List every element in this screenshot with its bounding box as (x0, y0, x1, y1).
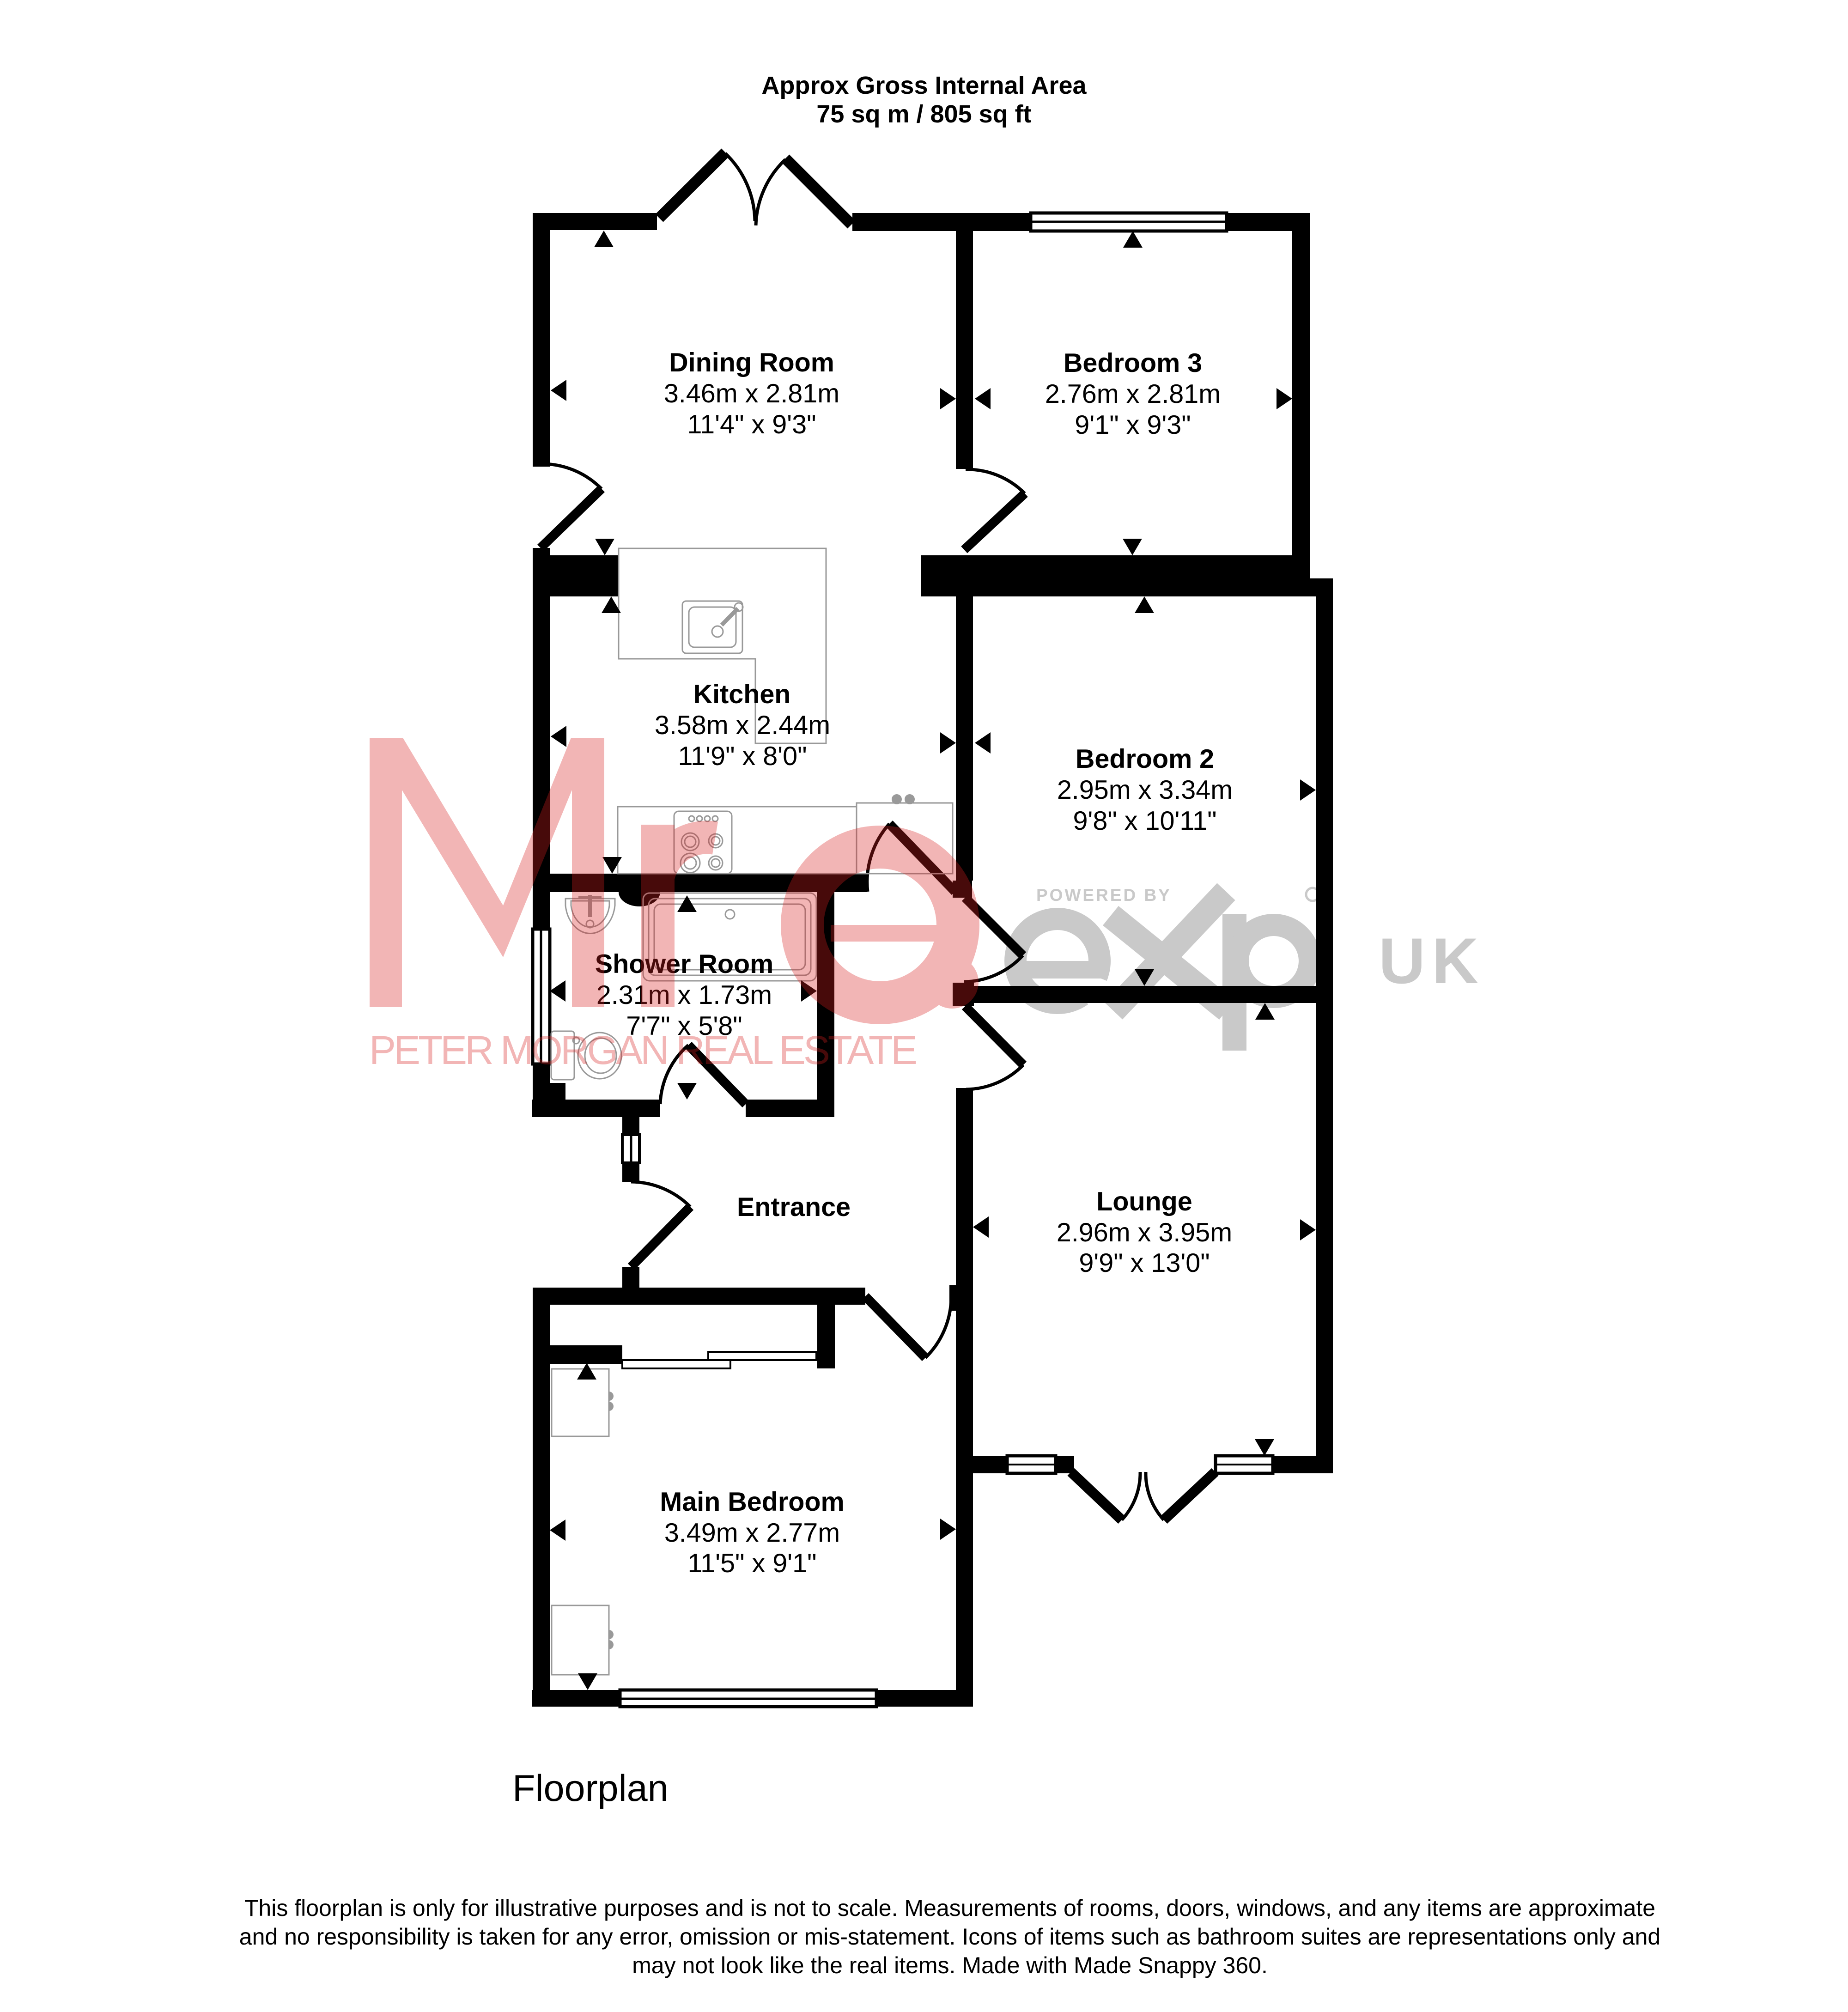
svg-text:11'4" x 9'3": 11'4" x 9'3" (687, 410, 816, 439)
svg-text:Main Bedroom: Main Bedroom (660, 1487, 844, 1517)
svg-text:2.95m x 3.34m: 2.95m x 3.34m (1057, 775, 1233, 805)
svg-text:75 sq m / 805 sq ft: 75 sq m / 805 sq ft (816, 100, 1031, 128)
svg-text:11'5" x 9'1": 11'5" x 9'1" (687, 1549, 816, 1578)
svg-text:3.46m x 2.81m: 3.46m x 2.81m (664, 379, 839, 408)
svg-text:PETER MORGAN REAL ESTATE: PETER MORGAN REAL ESTATE (369, 1028, 922, 1073)
svg-text:11'9" x 8'0": 11'9" x 8'0" (678, 742, 807, 771)
svg-text:2.31m x 1.73m: 2.31m x 1.73m (596, 980, 772, 1010)
svg-text:2.96m x 3.95m: 2.96m x 3.95m (1057, 1218, 1232, 1247)
svg-text:may not look like the real ite: may not look like the real items. Made w… (632, 1952, 1268, 1978)
svg-text:and no responsibility is taken: and no responsibility is taken for any e… (239, 1924, 1660, 1950)
svg-text:Kitchen: Kitchen (693, 680, 791, 709)
svg-text:Entrance: Entrance (737, 1192, 851, 1222)
svg-text:9'1" x 9'3": 9'1" x 9'3" (1075, 410, 1191, 440)
svg-text:2.76m x 2.81m: 2.76m x 2.81m (1045, 379, 1221, 409)
svg-text:3.58m x 2.44m: 3.58m x 2.44m (655, 711, 830, 740)
svg-text:Bedroom 3: Bedroom 3 (1064, 348, 1202, 378)
svg-text:Floorplan: Floorplan (512, 1768, 669, 1809)
svg-text:UK: UK (1379, 924, 1485, 997)
svg-text:Shower Room: Shower Room (595, 949, 774, 979)
svg-text:9'8" x 10'11": 9'8" x 10'11" (1073, 806, 1216, 836)
svg-text:3.49m x 2.77m: 3.49m x 2.77m (664, 1518, 840, 1548)
svg-text:9'9" x 13'0": 9'9" x 13'0" (1079, 1248, 1210, 1278)
svg-text:Bedroom 2: Bedroom 2 (1076, 744, 1214, 774)
svg-text:This floorplan is only for ill: This floorplan is only for illustrative … (244, 1895, 1655, 1921)
svg-text:Approx Gross Internal Area: Approx Gross Internal Area (761, 72, 1087, 99)
svg-text:POWERED BY: POWERED BY (1036, 886, 1172, 905)
svg-text:Lounge: Lounge (1096, 1187, 1192, 1216)
svg-text:Dining Room: Dining Room (669, 348, 834, 377)
